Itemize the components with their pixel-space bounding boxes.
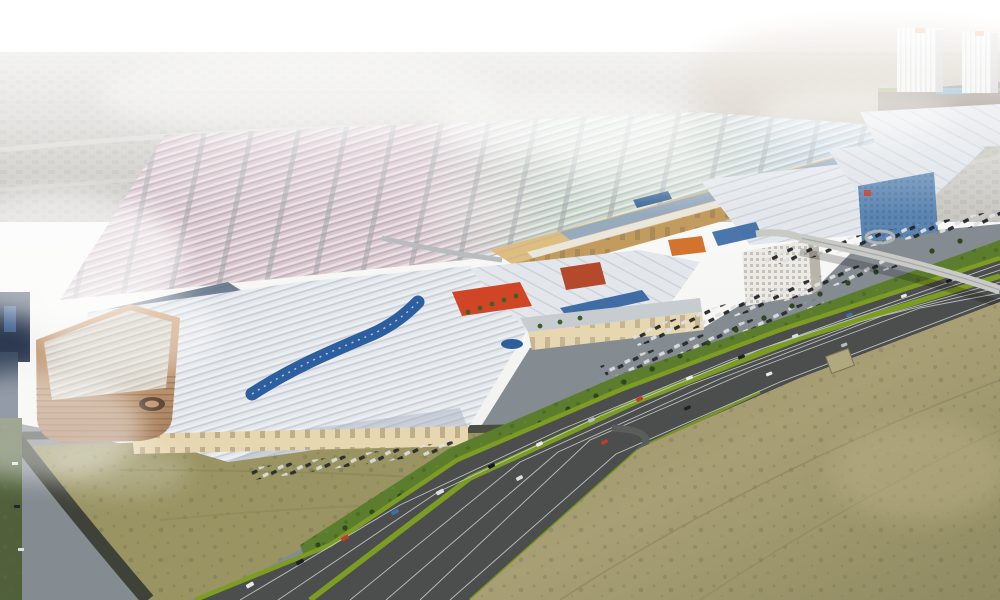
blue-vault-small (501, 339, 523, 349)
sky-haze-fade (0, 0, 1000, 215)
scene-canvas (0, 0, 1000, 600)
aerial-render (0, 0, 1000, 600)
